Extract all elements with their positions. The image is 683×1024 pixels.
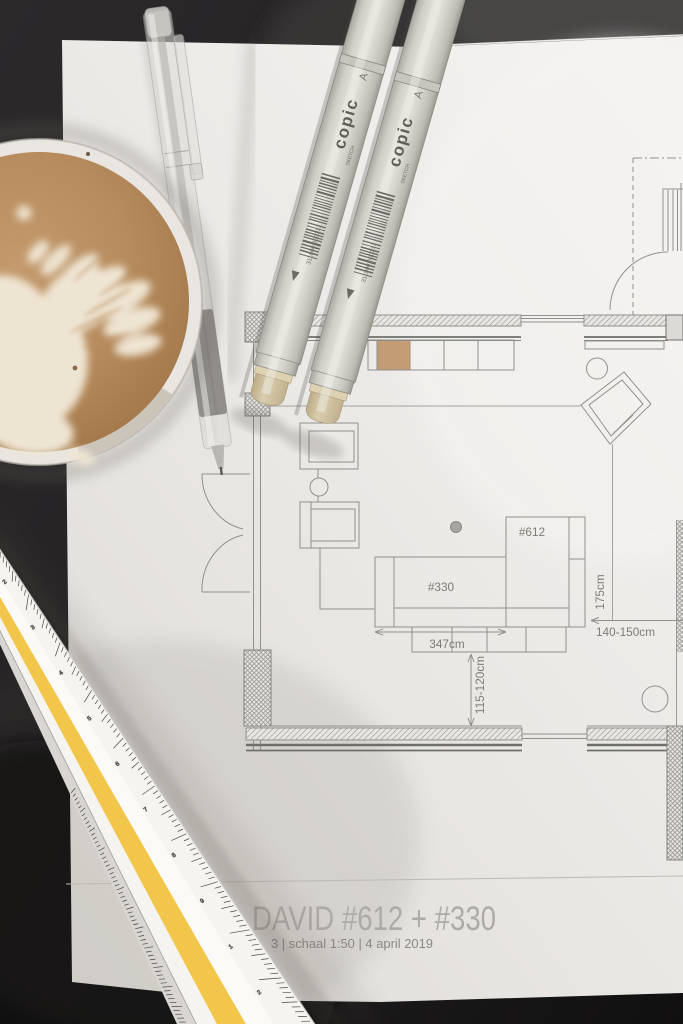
svg-text:#612: #612 bbox=[519, 525, 545, 539]
svg-text:140-150cm: 140-150cm bbox=[596, 625, 655, 639]
svg-text:115-120cm: 115-120cm bbox=[473, 656, 487, 714]
svg-text:175cm: 175cm bbox=[593, 574, 607, 610]
svg-text:347cm: 347cm bbox=[429, 637, 465, 651]
svg-text:#330: #330 bbox=[428, 580, 455, 594]
